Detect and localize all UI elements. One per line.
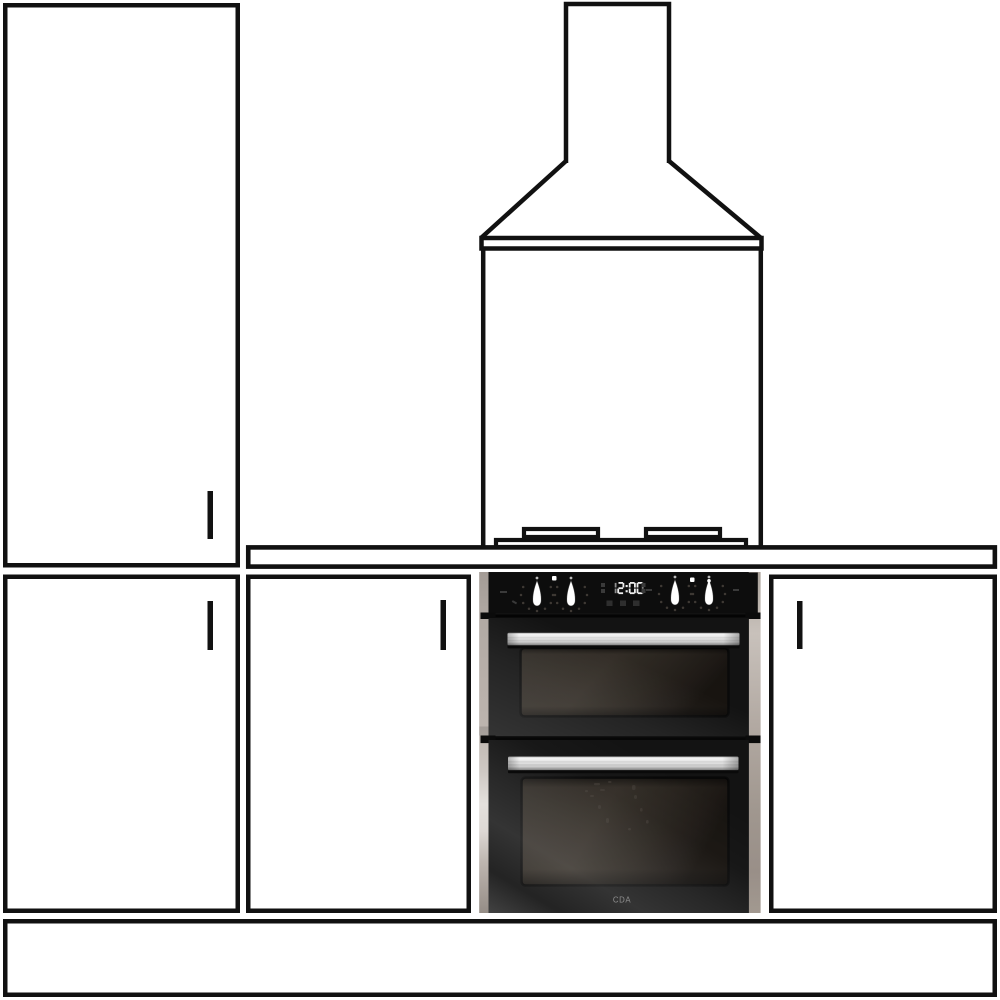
svg-text:CDA: CDA — [613, 896, 631, 905]
